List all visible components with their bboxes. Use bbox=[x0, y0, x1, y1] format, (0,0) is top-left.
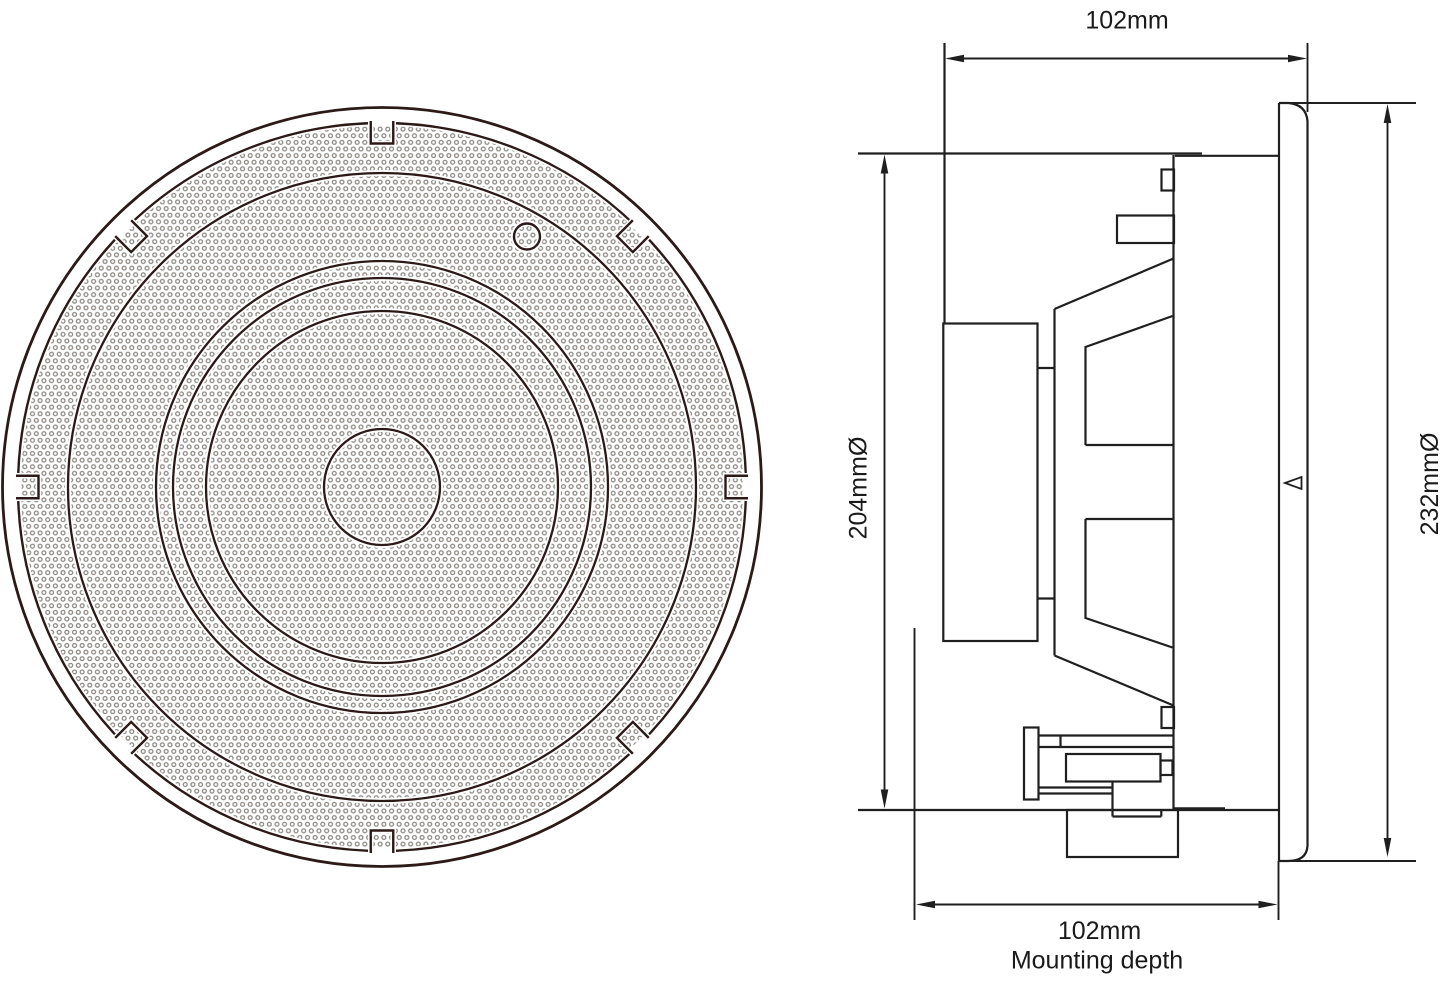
svg-text:102mm: 102mm bbox=[1085, 7, 1168, 35]
svg-text:204mmØ: 204mmØ bbox=[845, 437, 873, 540]
svg-text:102mm: 102mm bbox=[1058, 917, 1141, 945]
svg-text:Mounting depth: Mounting depth bbox=[1011, 947, 1183, 975]
svg-text:232mmØ: 232mmØ bbox=[1416, 433, 1444, 536]
